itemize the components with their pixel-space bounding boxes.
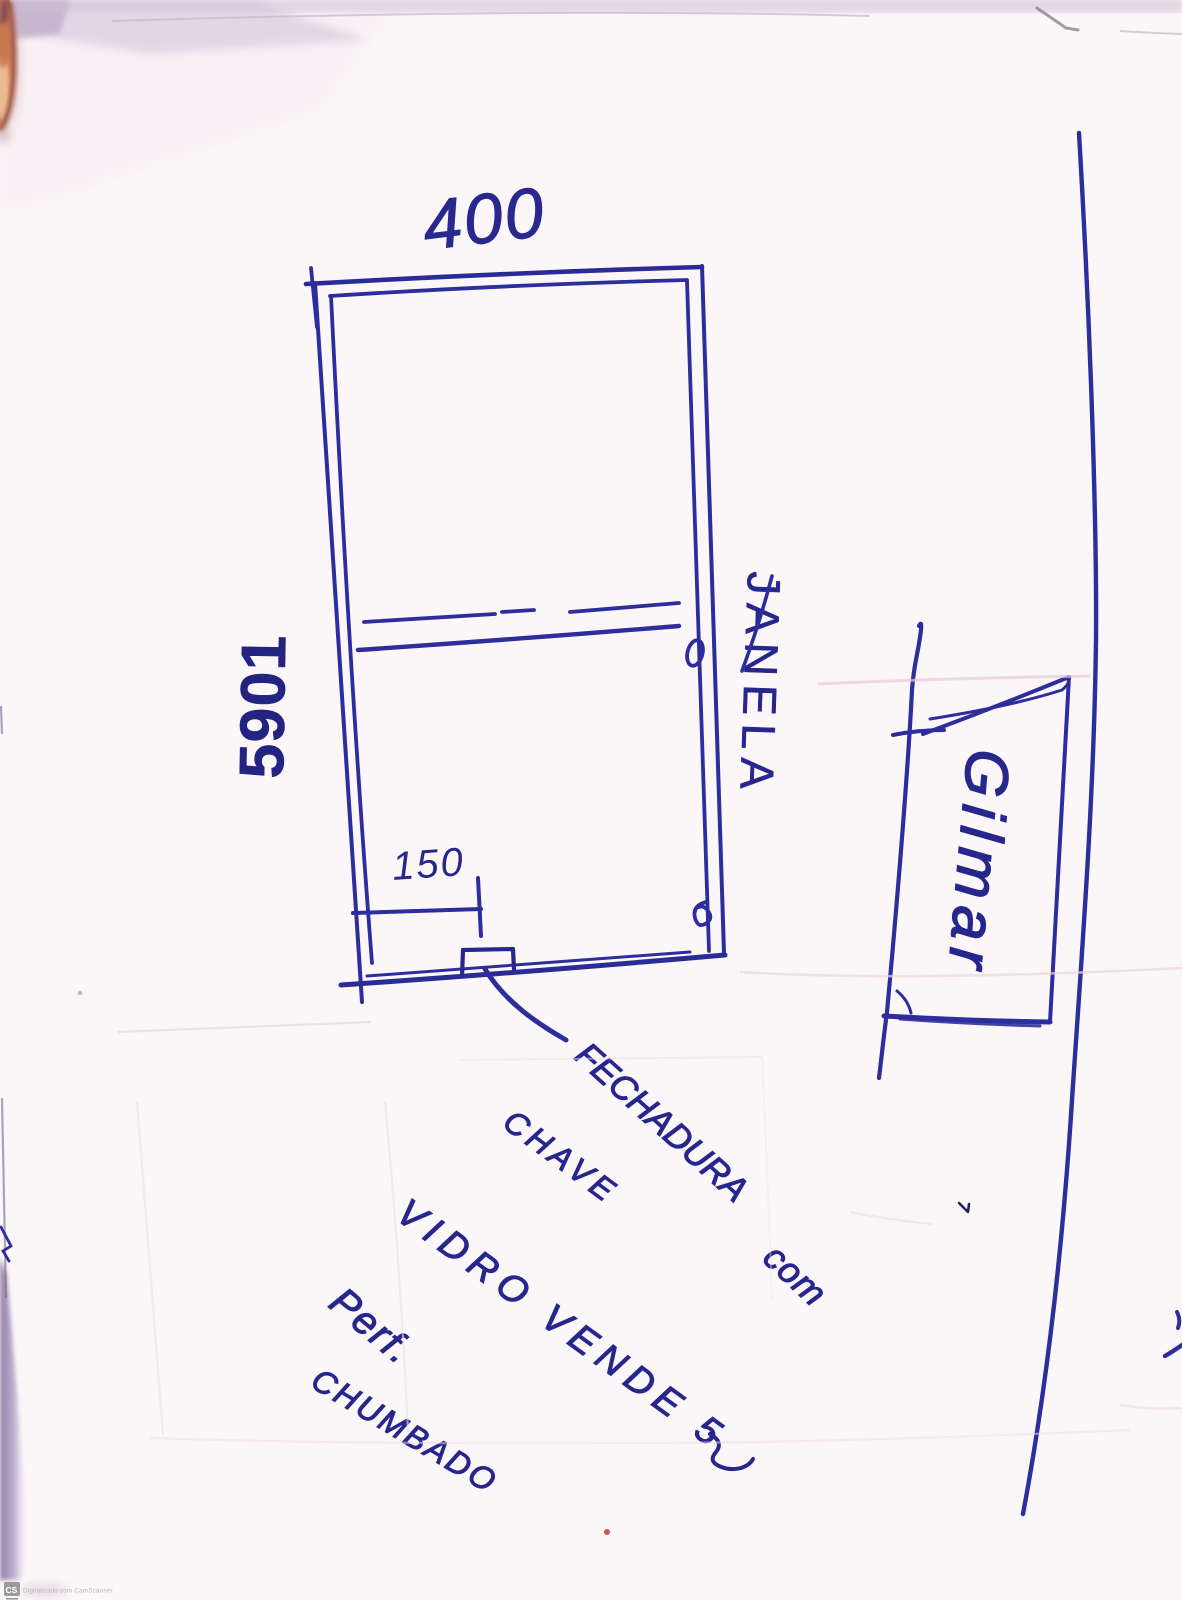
svg-text:400: 400 bbox=[418, 173, 549, 265]
svg-text:JANELA: JANELA bbox=[730, 571, 791, 798]
svg-text:Digitalizado com CamScanner: Digitalizado com CamScanner bbox=[23, 1588, 113, 1595]
svg-text:5901: 5901 bbox=[227, 634, 300, 779]
svg-text:CS: CS bbox=[6, 1585, 18, 1595]
svg-text:150: 150 bbox=[391, 840, 467, 889]
